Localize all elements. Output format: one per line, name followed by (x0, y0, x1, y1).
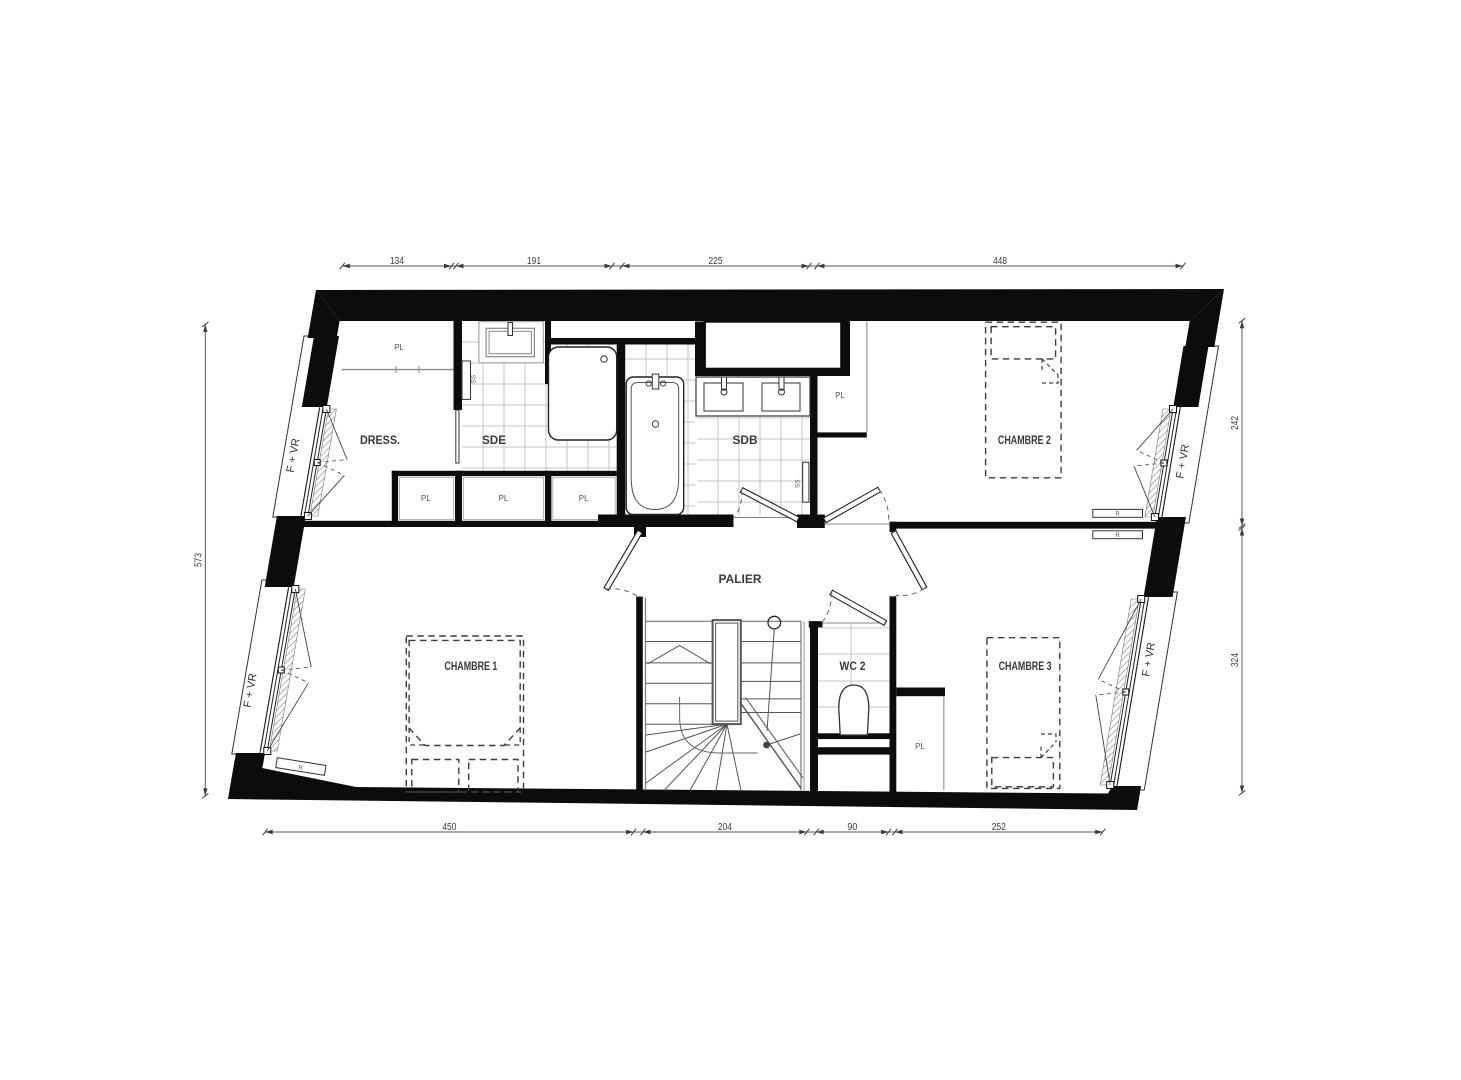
svg-text:PL: PL (421, 494, 431, 503)
svg-text:CHAMBRE 2: CHAMBRE 2 (998, 433, 1051, 447)
svg-text:324: 324 (1230, 653, 1241, 667)
svg-text:PL: PL (499, 494, 509, 503)
svg-text:PL: PL (915, 742, 925, 751)
svg-text:191: 191 (527, 256, 541, 267)
svg-text:R: R (1115, 512, 1120, 518)
svg-text:90: 90 (847, 822, 857, 833)
svg-text:CHAMBRE 1: CHAMBRE 1 (444, 659, 497, 673)
svg-text:225: 225 (709, 256, 723, 267)
svg-text:PALIER: PALIER (719, 572, 762, 586)
svg-text:R: R (1115, 533, 1120, 539)
svg-text:SDB: SDB (733, 433, 758, 447)
svg-text:PL: PL (835, 391, 845, 400)
svg-text:SS: SS (471, 374, 478, 383)
svg-text:WC 2: WC 2 (840, 659, 866, 673)
svg-text:242: 242 (1230, 416, 1241, 430)
svg-text:573: 573 (194, 553, 205, 567)
svg-text:450: 450 (442, 822, 456, 833)
svg-text:DRESS.: DRESS. (360, 433, 400, 447)
svg-text:134: 134 (390, 256, 404, 267)
svg-text:204: 204 (718, 822, 732, 833)
svg-text:PL: PL (579, 494, 589, 503)
svg-text:448: 448 (993, 256, 1007, 267)
svg-text:SS: SS (795, 479, 802, 488)
svg-text:CHAMBRE 3: CHAMBRE 3 (999, 659, 1052, 673)
svg-text:PL: PL (394, 343, 404, 352)
svg-text:252: 252 (992, 822, 1006, 833)
svg-text:SDE: SDE (482, 433, 506, 447)
